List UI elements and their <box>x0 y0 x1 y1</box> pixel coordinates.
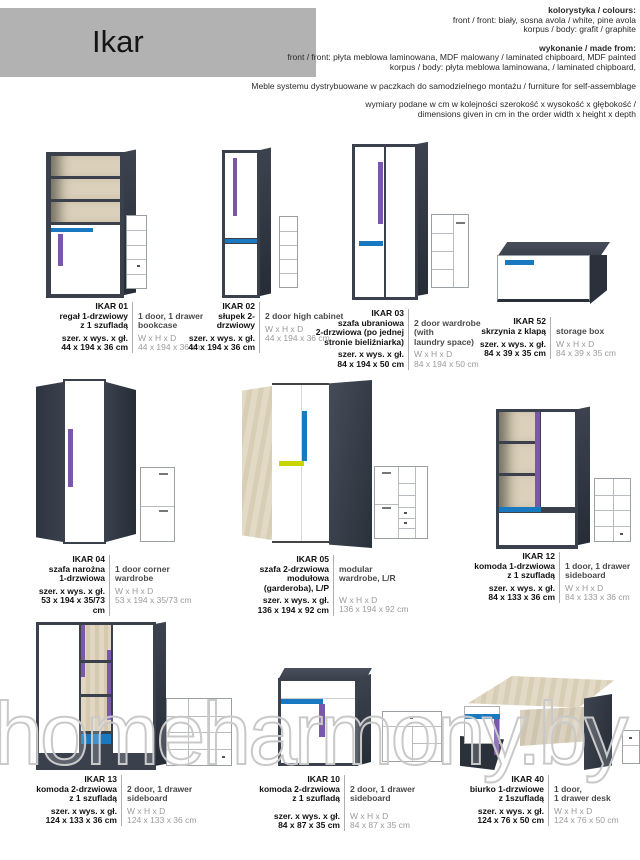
open-shelf <box>499 444 535 473</box>
dims-value-en: 53 x 194 x 35/73 cm <box>115 596 195 606</box>
purple-handle <box>233 158 237 216</box>
diagram-line <box>167 716 231 717</box>
diagram-drawer-dot <box>620 533 623 535</box>
diagram-hanging-rail <box>456 222 465 224</box>
furniture-ikar-03 <box>352 142 432 302</box>
dims-value-pl: 84 x 39 x 35 cm <box>470 349 546 359</box>
drawer-front <box>499 513 575 545</box>
cabinet-body <box>278 678 358 766</box>
door <box>113 625 153 753</box>
product-name-pl: szafa ubraniowa 2-drzwiowa (po jednej st… <box>313 319 404 348</box>
furniture-ikar-10 <box>276 668 376 772</box>
door <box>51 225 120 294</box>
door <box>63 379 106 544</box>
diagram-line <box>398 495 415 496</box>
dimension-diagram-ikar-13 <box>166 698 232 766</box>
product-name-pl: komoda 1-drzwiowa z 1 szufladą <box>468 562 555 581</box>
open-shelf <box>499 412 535 441</box>
product-name-en: 2 door, 1 drawer sideboard <box>350 785 435 809</box>
product-label-ikar-40: IKAR 40 biurko 1-drzwiowe z 1szufladą sz… <box>456 775 629 826</box>
open-shelf <box>51 179 120 199</box>
door <box>355 147 384 297</box>
product-label-ikar-04: IKAR 04 szafa narożna 1-drzwiowa szer. x… <box>28 555 195 616</box>
purple-handle <box>81 625 85 677</box>
dims-value-en: 84 x 87 x 35 cm <box>350 821 435 831</box>
angled-panel <box>36 382 63 542</box>
product-label-ikar-10: IKAR 10 komoda 2-drzwiowa z 1 szufladą s… <box>252 775 435 831</box>
diagram-line <box>167 732 231 733</box>
purple-handle <box>68 429 73 487</box>
made-from-body-line: korpus / body: płyta meblowa laminowana,… <box>251 63 636 73</box>
graphite-panel <box>329 380 372 548</box>
blue-handle <box>505 260 534 265</box>
colors-body-line: korpus / body: grafit / graphite <box>251 25 636 35</box>
dimension-diagram-ikar-03 <box>431 214 469 288</box>
furniture-ikar-12 <box>496 406 594 550</box>
shelf-divider <box>81 694 111 697</box>
diagram-line <box>167 749 231 750</box>
furniture-ikar-52 <box>494 242 614 310</box>
dims-value-pl: 124 x 133 x 36 cm <box>28 816 117 826</box>
purple-handle <box>535 412 540 507</box>
diagram-line <box>127 259 146 260</box>
product-name-en: 1 door, 1 drawer sideboard <box>565 562 640 581</box>
open-shelf <box>51 202 120 222</box>
diagram-line <box>415 467 416 538</box>
open-shelf <box>499 476 535 507</box>
dims-value-pl: 84 x 133 x 36 cm <box>468 593 555 603</box>
blue-handle <box>499 507 541 512</box>
side-panel <box>576 407 590 546</box>
product-name-en: 1 door corner wardrobe <box>115 565 195 584</box>
diagram-line <box>280 259 297 260</box>
diagram-line <box>432 233 453 234</box>
diagram-line <box>280 245 297 246</box>
diagram-line <box>398 518 415 519</box>
product-name-en: modular wardrobe, L/R <box>339 565 419 593</box>
cabinet-body <box>496 409 578 549</box>
diagram-drawer-dot <box>137 265 140 267</box>
diagram-line <box>398 507 415 508</box>
blue-handle <box>302 411 307 461</box>
header-notes: kolorystyka / colours: front / front: bi… <box>251 6 636 128</box>
wood-panel <box>242 386 272 540</box>
dims-value-en: 124 x 76 x 50 cm <box>554 816 629 826</box>
dims-value-en: 84 x 39 x 35 cm <box>556 349 621 359</box>
furniture-ikar-02 <box>222 148 274 300</box>
diagram-line <box>375 504 398 505</box>
dims-value-pl: 124 x 76 x 50 cm <box>456 816 544 826</box>
purple-handle <box>494 719 499 755</box>
diagram-line <box>453 215 454 287</box>
blue-handle <box>51 228 93 232</box>
dims-value-en: 84 x 133 x 36 cm <box>565 593 640 603</box>
diagram-drawer-dot <box>404 512 407 514</box>
product-name-pl: skrzynia z klapą <box>470 327 546 337</box>
dimension-diagram-ikar-05 <box>374 466 428 539</box>
diagram-line <box>432 269 453 270</box>
cabinet-body <box>352 144 418 300</box>
distribution-note: Meble systemu dystrybuowane w paczkach d… <box>251 82 636 92</box>
cabinet-body <box>222 150 260 298</box>
front <box>281 681 355 763</box>
dims-value-pl: 53 x 194 x 35/73 cm <box>28 596 105 615</box>
blue-handle <box>359 241 383 246</box>
diagram-hanging-rail <box>159 473 168 475</box>
made-from-note: wykonanie / made from: front / front: pł… <box>251 44 636 73</box>
diagram-line <box>141 506 174 507</box>
product-name-pl: szafa narożna 1-drzwiowa <box>28 565 105 584</box>
diagram-line <box>595 510 630 511</box>
product-name-en: 1 door, 1 drawer desk <box>554 785 629 804</box>
diagram-line <box>398 483 415 484</box>
furniture-ikar-40 <box>458 676 616 776</box>
diagram-drawer-dot <box>410 717 413 719</box>
product-label-ikar-12: IKAR 12 komoda 1-drzwiowa z 1 szufladą s… <box>468 552 640 603</box>
product-name-pl: komoda 2-drzwiowa z 1 szufladą <box>28 785 117 804</box>
open-shelf <box>51 156 120 176</box>
product-name-pl: regał 1-drzwiowy z 1 szufladą <box>36 312 128 331</box>
diagram-line <box>595 526 630 527</box>
diagram-line <box>412 743 441 744</box>
dims-value-pl: 84 x 194 x 50 cm <box>313 360 404 370</box>
door <box>386 147 415 297</box>
side-panel <box>590 255 607 304</box>
door <box>225 244 257 295</box>
door <box>225 153 257 238</box>
dims-value-pl: 44 x 194 x 36 cm <box>36 343 128 353</box>
product-label-ikar-13: IKAR 13 komoda 2-drzwiowa z 1 szufladą s… <box>28 775 212 826</box>
side-panel <box>584 694 612 770</box>
distribution-line: Meble systemu dystrybuowane w paczkach d… <box>251 82 636 92</box>
door <box>541 412 575 507</box>
drawer-front <box>464 706 500 744</box>
product-label-ikar-05: IKAR 05 szafa 2-drzwiowa modułowa (garde… <box>240 555 419 616</box>
yellow-handle <box>279 461 304 466</box>
furniture-ikar-13 <box>36 620 168 772</box>
diagram-line <box>127 274 146 275</box>
product-label-ikar-52: IKAR 52 skrzynia z klapą szer. x wys. x … <box>470 317 621 359</box>
dims-value-en: 136 x 194 x 92 cm <box>339 605 419 615</box>
shelf-divider <box>81 660 111 663</box>
blue-drawer-front <box>81 734 111 744</box>
diagram-line <box>623 745 639 746</box>
diagram-hanging-rail <box>382 472 391 474</box>
diagram-drawer-dot <box>222 756 225 758</box>
furniture-ikar-04 <box>36 378 136 546</box>
blue-handle <box>281 699 323 704</box>
cabinet-body <box>36 622 156 770</box>
colors-note: kolorystyka / colours: front / front: bi… <box>251 6 636 35</box>
diagram-hanging-rail <box>159 510 168 512</box>
side-panel <box>356 674 371 766</box>
dims-value-en: 84 x 194 x 50 cm <box>414 360 501 370</box>
door <box>39 625 79 753</box>
product-name-pl: szafa 2-drzwiowa modułowa (garderoba), L… <box>240 565 329 594</box>
dims-value-en: 124 x 133 x 36 cm <box>127 816 212 826</box>
furniture-ikar-05 <box>242 380 372 548</box>
angled-panel <box>106 382 136 542</box>
dimension-diagram-ikar-12 <box>594 478 631 542</box>
dims-value-pl: 44 x 194 x 36 cm <box>181 343 255 353</box>
dims-value-pl: 136 x 194 x 92 cm <box>240 606 329 616</box>
diagram-drawer-dot <box>404 522 407 524</box>
diagram-line <box>127 245 146 246</box>
product-name-en: 2 door, 1 drawer sideboard <box>127 785 212 804</box>
diagram-line <box>398 528 415 529</box>
diagram-line <box>127 230 146 231</box>
dims-value-pl: 84 x 87 x 35 cm <box>252 821 340 831</box>
dimension-diagram-ikar-10 <box>382 711 442 762</box>
dimension-diagram-ikar-04 <box>140 467 175 542</box>
blue-handle <box>225 239 257 243</box>
purple-handle <box>58 234 63 266</box>
diagram-line <box>280 273 297 274</box>
cabinet-body <box>46 152 124 298</box>
product-name-pl: słupek 2-drzwiowy <box>181 312 255 331</box>
diagram-hanging-rail <box>382 507 391 509</box>
product-name-pl: komoda 2-drzwiowa z 1 szufladą <box>252 785 340 809</box>
dimensions-note-line2: dimensions given in cm in the order widt… <box>251 110 636 120</box>
purple-handle <box>378 162 383 224</box>
diagram-drawer-dot <box>629 737 632 739</box>
box-front <box>497 255 590 302</box>
catalog-page: Ikar kolorystyka / colours: front / fron… <box>0 0 640 860</box>
diagram-line <box>280 231 297 232</box>
door <box>272 383 329 543</box>
product-name-pl: biurko 1-drzwiowe z 1szufladą <box>456 785 544 804</box>
dimensions-note: wymiary podane w cm w kolejności szeroko… <box>251 100 636 119</box>
product-name-en: storage box <box>556 327 621 337</box>
diagram-line <box>595 495 630 496</box>
diagram-line <box>432 251 453 252</box>
dimension-diagram-ikar-01 <box>126 215 147 289</box>
purple-handle <box>319 704 325 737</box>
dimension-diagram-ikar-40 <box>622 730 640 764</box>
dimension-diagram-ikar-02 <box>279 216 298 288</box>
